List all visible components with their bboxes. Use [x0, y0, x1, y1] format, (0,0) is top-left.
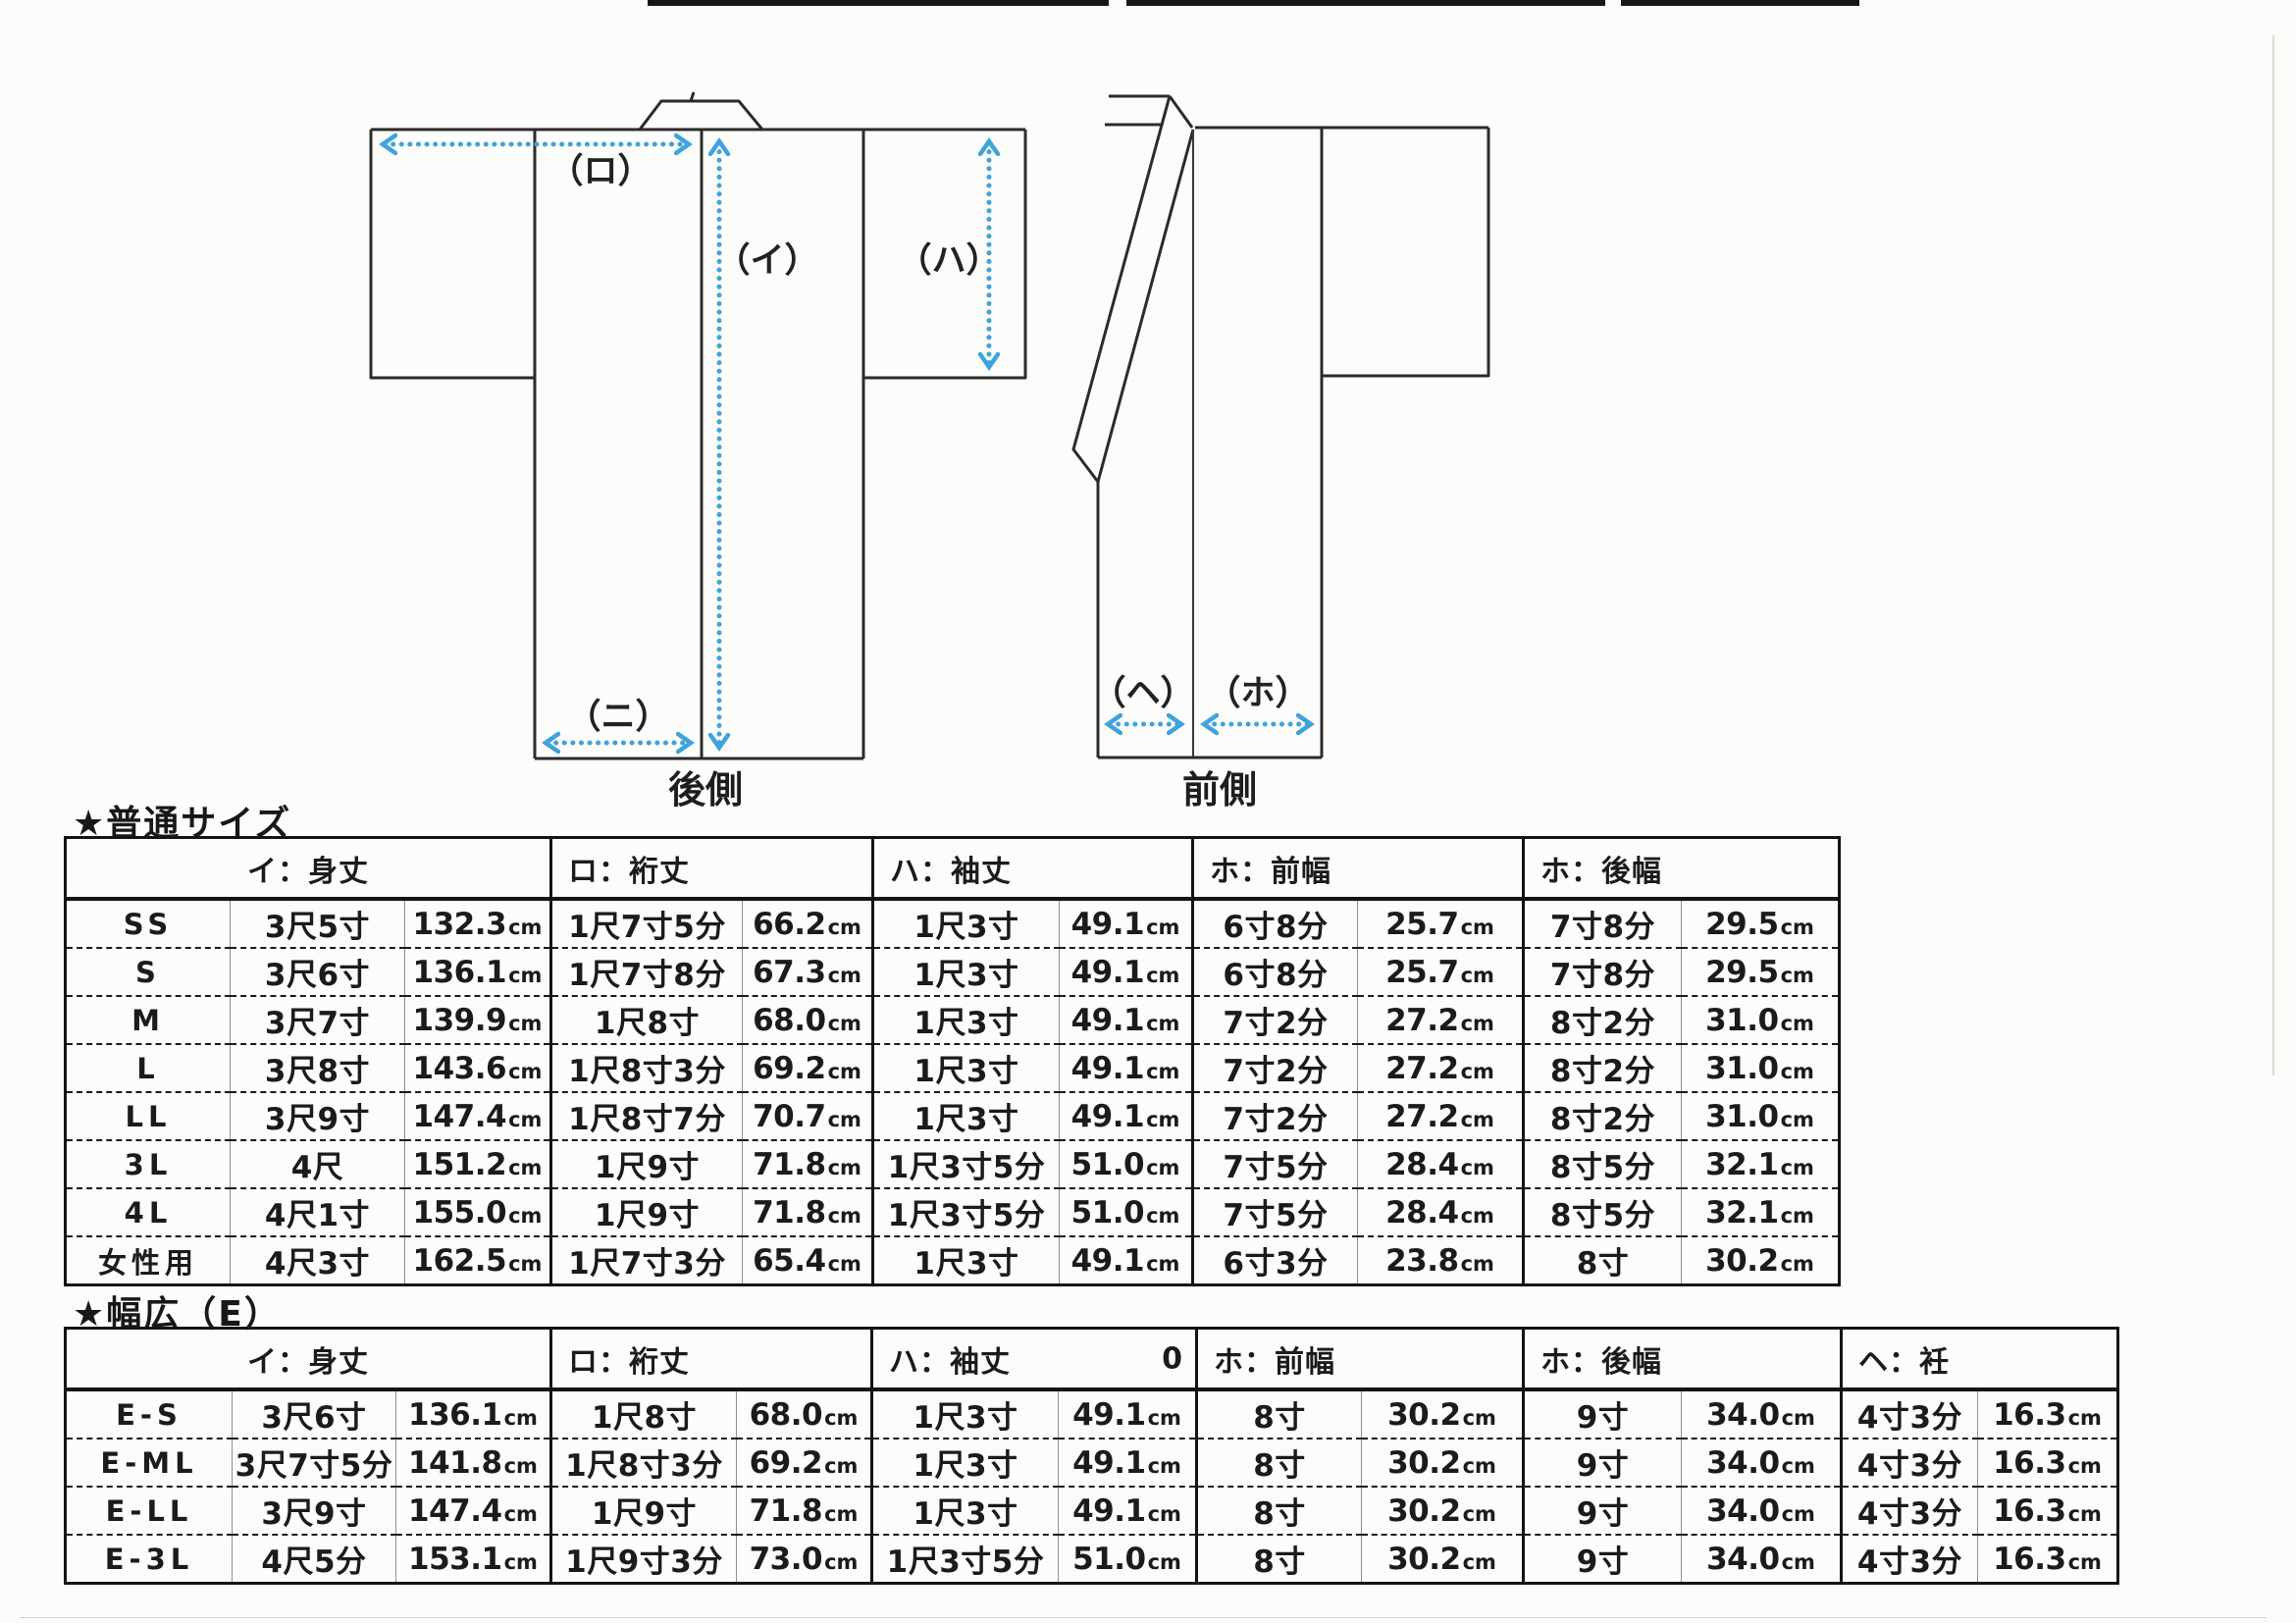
cell-maehaba: 6寸8分	[1193, 899, 1358, 948]
cell-yuki: 1尺9寸	[551, 1140, 743, 1188]
unit-label: cm	[1781, 1012, 1814, 1035]
wide-size-table: イ：身丈 ロ：裄丈 ハ：袖丈 0 ホ：前幅 ホ：後幅 ヘ：衽 E-S3尺6寸13…	[64, 1327, 2119, 1585]
cell-ushirohaba-cm: 34.0cm	[1682, 1535, 1842, 1584]
cell-sode-cm-value: 49.1	[1072, 1493, 1146, 1529]
cell-sode-cm: 49.1cm	[1060, 996, 1193, 1044]
cell-maehaba-cm-value: 27.2	[1385, 1051, 1459, 1086]
col-header-yuki: ロ：裄丈	[551, 838, 873, 900]
cell-sode: 1尺3寸	[873, 899, 1060, 948]
cell-yuki-cm: 71.8cm	[743, 1188, 873, 1236]
cell-size: E-LL	[66, 1487, 233, 1535]
unit-label: cm	[508, 1012, 542, 1035]
cell-mitake-cm: 153.1cm	[396, 1535, 551, 1584]
unit-label: cm	[508, 1060, 542, 1083]
table-row: S3尺6寸136.1cm1尺7寸8分67.3cm1尺3寸49.1cm6寸8分25…	[66, 948, 1840, 996]
cell-ushirohaba-cm: 34.0cm	[1682, 1439, 1842, 1487]
cell-mitake-cm: 136.1cm	[396, 1389, 551, 1439]
back-view-outline	[371, 92, 1025, 759]
cell-okumi: 4寸3分	[1842, 1535, 1978, 1584]
cell-maehaba-cm-value: 25.7	[1385, 907, 1459, 942]
cell-sode-cm: 49.1cm	[1060, 1236, 1193, 1285]
cell-maehaba-cm: 27.2cm	[1358, 1092, 1524, 1140]
col-header-maehaba: ホ：前幅	[1193, 838, 1524, 900]
cell-sode-cm-value: 51.0	[1072, 1542, 1146, 1577]
cell-maehaba-cm-value: 30.2	[1387, 1397, 1461, 1433]
cell-yuki-cm-value: 69.2	[750, 1445, 823, 1481]
cell-size: S	[66, 948, 231, 996]
cell-yuki: 1尺9寸	[551, 1487, 737, 1535]
cell-ushirohaba-cm: 31.0cm	[1682, 1092, 1840, 1140]
cell-size: E-3L	[66, 1535, 233, 1584]
front-collar-band	[1073, 96, 1193, 482]
cell-sode-cm-value: 49.1	[1071, 1243, 1145, 1279]
cell-sode-cm-value: 49.1	[1071, 1051, 1145, 1086]
cell-yuki: 1尺8寸3分	[551, 1044, 743, 1092]
col-header-sode: ハ：袖丈	[873, 838, 1193, 900]
cell-yuki-cm: 71.8cm	[737, 1487, 872, 1535]
cell-maehaba-cm: 28.4cm	[1358, 1140, 1524, 1188]
cell-sode-cm: 49.1cm	[1059, 1389, 1197, 1439]
cell-mitake-cm: 155.0cm	[405, 1188, 551, 1236]
unit-label: cm	[1148, 1502, 1181, 1526]
cell-okumi-cm: 16.3cm	[1978, 1535, 2118, 1584]
cell-maehaba-cm-value: 27.2	[1385, 1003, 1459, 1038]
cell-mitake-cm: 162.5cm	[405, 1236, 551, 1285]
unit-label: cm	[1461, 1108, 1494, 1131]
unit-label: cm	[1146, 1204, 1179, 1228]
unit-label: cm	[1781, 964, 1814, 987]
cell-sode-cm: 51.0cm	[1060, 1188, 1193, 1236]
cell-size: 女性用	[66, 1236, 231, 1285]
unit-label: cm	[508, 916, 542, 939]
cell-mitake-cm-value: 139.9	[413, 1003, 507, 1038]
cell-sode: 1尺3寸	[872, 1439, 1059, 1487]
cell-ushirohaba-cm: 34.0cm	[1682, 1487, 1842, 1535]
cell-maehaba-cm-value: 25.7	[1385, 955, 1459, 990]
cell-ushirohaba-cm-value: 30.2	[1705, 1243, 1779, 1279]
col-header-ushirohaba: ホ：後幅	[1524, 1329, 1842, 1390]
cell-maehaba-cm-value: 30.2	[1387, 1445, 1461, 1481]
cell-yuki-cm-value: 68.0	[753, 1003, 826, 1038]
cell-yuki-cm-value: 71.8	[753, 1147, 826, 1182]
cell-ushirohaba-cm: 29.5cm	[1682, 948, 1840, 996]
cell-mitake: 3尺7寸5分	[233, 1439, 396, 1487]
cell-mitake-cm: 147.4cm	[396, 1487, 551, 1535]
cell-ushirohaba: 9寸	[1524, 1389, 1682, 1439]
unit-label: cm	[1463, 1454, 1496, 1478]
col-header-mitake: イ：身丈	[66, 1329, 551, 1390]
cell-maehaba-cm-value: 30.2	[1387, 1542, 1461, 1577]
cell-yuki-cm-value: 69.2	[753, 1051, 826, 1086]
cell-yuki-cm: 69.2cm	[737, 1439, 872, 1487]
cell-yuki: 1尺7寸8分	[551, 948, 743, 996]
cell-mitake-cm: 139.9cm	[405, 996, 551, 1044]
cell-ushirohaba-cm-value: 34.0	[1706, 1445, 1780, 1481]
cell-mitake: 3尺9寸	[231, 1092, 405, 1140]
table-row: L3尺8寸143.6cm1尺8寸3分69.2cm1尺3寸49.1cm7寸2分27…	[66, 1044, 1840, 1092]
unit-label: cm	[1461, 964, 1494, 987]
cell-maehaba: 8寸	[1197, 1535, 1362, 1584]
cell-yuki: 1尺9寸	[551, 1188, 743, 1236]
cell-sode-cm-value: 49.1	[1071, 955, 1145, 990]
cell-maehaba-cm: 23.8cm	[1358, 1236, 1524, 1285]
cell-yuki-cm-value: 71.8	[750, 1493, 823, 1529]
cell-mitake-cm-value: 132.3	[413, 907, 507, 942]
cell-ushirohaba: 8寸5分	[1524, 1188, 1682, 1236]
table-row: 女性用4尺3寸162.5cm1尺7寸3分65.4cm1尺3寸49.1cm6寸3分…	[66, 1236, 1840, 1285]
cell-maehaba: 8寸	[1197, 1389, 1362, 1439]
cell-mitake: 4尺3寸	[231, 1236, 405, 1285]
cell-ushirohaba-cm-value: 29.5	[1705, 907, 1779, 942]
cell-maehaba: 7寸5分	[1193, 1140, 1358, 1188]
unit-label: cm	[1463, 1406, 1496, 1430]
unit-label: cm	[1463, 1550, 1496, 1574]
unit-label: cm	[1461, 1204, 1494, 1228]
unit-label: cm	[1461, 1012, 1494, 1035]
back-left-sleeve	[371, 130, 535, 378]
cell-yuki: 1尺7寸5分	[551, 899, 743, 948]
cell-maehaba-cm: 30.2cm	[1362, 1389, 1524, 1439]
cell-yuki-cm: 68.0cm	[737, 1389, 872, 1439]
cell-yuki: 1尺8寸3分	[551, 1439, 737, 1487]
cell-sode-cm: 49.1cm	[1059, 1487, 1197, 1535]
cell-ushirohaba-cm: 32.1cm	[1682, 1188, 1840, 1236]
cell-mitake: 3尺6寸	[231, 948, 405, 996]
col-header-sode: ハ：袖丈 0	[872, 1329, 1197, 1390]
normal-size-table-body: SS3尺5寸132.3cm1尺7寸5分66.2cm1尺3寸49.1cm6寸8分2…	[66, 899, 1840, 1285]
cell-mitake-cm: 147.4cm	[405, 1092, 551, 1140]
cell-yuki: 1尺9寸3分	[551, 1535, 737, 1584]
unit-label: cm	[1782, 1454, 1815, 1478]
cell-mitake: 3尺8寸	[231, 1044, 405, 1092]
cell-ushirohaba-cm: 31.0cm	[1682, 1044, 1840, 1092]
cell-mitake-cm-value: 141.8	[408, 1445, 502, 1481]
cell-mitake-cm: 151.2cm	[405, 1140, 551, 1188]
col-header-sode-stray-zero: 0	[1162, 1341, 1183, 1376]
unit-label: cm	[1781, 916, 1814, 939]
cell-maehaba-cm: 25.7cm	[1358, 948, 1524, 996]
unit-label: cm	[508, 964, 542, 987]
cell-yuki-cm: 69.2cm	[743, 1044, 873, 1092]
table-row: 4L4尺1寸155.0cm1尺9寸71.8cm1尺3寸5分51.0cm7寸5分2…	[66, 1188, 1840, 1236]
unit-label: cm	[1782, 1406, 1815, 1430]
unit-label: cm	[1461, 1252, 1494, 1276]
cell-ushirohaba-cm-value: 31.0	[1705, 1051, 1779, 1086]
cell-maehaba-cm: 28.4cm	[1358, 1188, 1524, 1236]
cell-sode-cm-value: 49.1	[1071, 1099, 1145, 1134]
cell-ushirohaba: 8寸2分	[1524, 996, 1682, 1044]
unit-label: cm	[1781, 1156, 1814, 1179]
cell-maehaba-cm-value: 23.8	[1385, 1243, 1459, 1279]
cell-ushirohaba: 8寸2分	[1524, 1044, 1682, 1092]
cell-size: M	[66, 996, 231, 1044]
table-row: E-S3尺6寸136.1cm1尺8寸68.0cm1尺3寸49.1cm8寸30.2…	[66, 1389, 2118, 1439]
front-view-outline	[1073, 96, 1488, 758]
unit-label: cm	[508, 1252, 542, 1276]
cell-ushirohaba-cm: 29.5cm	[1682, 899, 1840, 948]
cell-yuki: 1尺8寸	[551, 1389, 737, 1439]
cell-okumi-cm-value: 16.3	[1993, 1445, 2066, 1481]
unit-label: cm	[2068, 1550, 2102, 1574]
label-he: （ヘ）	[1091, 674, 1194, 713]
cell-yuki-cm: 66.2cm	[743, 899, 873, 948]
unit-label: cm	[1461, 1156, 1494, 1179]
back-collar	[640, 101, 762, 130]
cell-sode: 1尺3寸	[872, 1487, 1059, 1535]
unit-label: cm	[2068, 1502, 2102, 1526]
unit-label: cm	[1463, 1502, 1496, 1526]
cell-mitake: 3尺7寸	[231, 996, 405, 1044]
cell-mitake-cm-value: 147.4	[408, 1493, 502, 1529]
cell-maehaba: 8寸	[1197, 1487, 1362, 1535]
cell-mitake: 3尺6寸	[233, 1389, 396, 1439]
col-header-sode-label: ハ：袖丈	[889, 1345, 1011, 1380]
cell-ushirohaba: 9寸	[1524, 1439, 1682, 1487]
cell-maehaba-cm-value: 28.4	[1385, 1147, 1459, 1182]
cell-ushirohaba-cm-value: 31.0	[1705, 1003, 1779, 1038]
cell-size: 4L	[66, 1188, 231, 1236]
cell-mitake-cm-value: 151.2	[413, 1147, 507, 1182]
table-row: M3尺7寸139.9cm1尺8寸68.0cm1尺3寸49.1cm7寸2分27.2…	[66, 996, 1840, 1044]
cell-maehaba: 7寸2分	[1193, 996, 1358, 1044]
cell-maehaba-cm-value: 30.2	[1387, 1493, 1461, 1529]
unit-label: cm	[1781, 1204, 1814, 1228]
cell-yuki-cm-value: 71.8	[753, 1195, 826, 1230]
unit-label: cm	[1146, 1012, 1179, 1035]
unit-label: cm	[824, 1550, 858, 1574]
cell-size: SS	[66, 899, 231, 948]
cell-sode: 1尺3寸5分	[872, 1535, 1059, 1584]
cell-ushirohaba: 8寸5分	[1524, 1140, 1682, 1188]
cell-mitake-cm-value: 155.0	[413, 1195, 507, 1230]
cell-size: 3L	[66, 1140, 231, 1188]
table-row: E-ML3尺7寸5分141.8cm1尺8寸3分69.2cm1尺3寸49.1cm8…	[66, 1439, 2118, 1487]
cell-maehaba-cm: 27.2cm	[1358, 1044, 1524, 1092]
cell-sode-cm: 49.1cm	[1060, 948, 1193, 996]
unit-label: cm	[828, 964, 861, 987]
cell-yuki-cm-value: 70.7	[753, 1099, 826, 1134]
cell-yuki: 1尺8寸	[551, 996, 743, 1044]
cell-maehaba-cm-value: 27.2	[1385, 1099, 1459, 1134]
cell-sode: 1尺3寸	[873, 1044, 1060, 1092]
front-right-sleeve	[1322, 128, 1488, 376]
unit-label: cm	[828, 916, 861, 939]
cell-sode-cm: 49.1cm	[1059, 1439, 1197, 1487]
cell-maehaba-cm: 25.7cm	[1358, 899, 1524, 948]
label-ho: （ホ）	[1206, 674, 1309, 713]
cell-ushirohaba: 9寸	[1524, 1535, 1682, 1584]
cell-maehaba: 8寸	[1197, 1439, 1362, 1487]
cell-ushirohaba-cm-value: 32.1	[1705, 1195, 1779, 1230]
unit-label: cm	[1461, 1060, 1494, 1083]
cell-ushirohaba-cm: 34.0cm	[1682, 1389, 1842, 1439]
unit-label: cm	[1461, 916, 1494, 939]
cell-mitake-cm: 143.6cm	[405, 1044, 551, 1092]
cell-maehaba-cm-value: 28.4	[1385, 1195, 1459, 1230]
unit-label: cm	[1148, 1550, 1181, 1574]
cell-sode-cm-value: 49.1	[1071, 1003, 1145, 1038]
cell-maehaba: 6寸8分	[1193, 948, 1358, 996]
label-i: （イ）	[715, 241, 818, 281]
scanned-size-chart-page: （ロ） （イ） （ハ） （ニ） （ヘ） （ホ） 後側 前側 ★普通サイズ イ：身…	[0, 0, 2296, 1623]
cell-ushirohaba: 9寸	[1524, 1487, 1682, 1535]
cell-yuki-cm: 71.8cm	[743, 1140, 873, 1188]
unit-label: cm	[508, 1204, 542, 1228]
cell-yuki: 1尺7寸3分	[551, 1236, 743, 1285]
unit-label: cm	[1146, 964, 1179, 987]
unit-label: cm	[1781, 1060, 1814, 1083]
cell-mitake: 4尺1寸	[231, 1188, 405, 1236]
col-header-ushirohaba: ホ：後幅	[1524, 838, 1840, 900]
unit-label: cm	[824, 1454, 858, 1478]
unit-label: cm	[504, 1502, 538, 1526]
unit-label: cm	[1781, 1252, 1814, 1276]
cell-mitake-cm-value: 136.1	[408, 1397, 502, 1433]
unit-label: cm	[508, 1156, 542, 1179]
unit-label: cm	[2068, 1454, 2102, 1478]
back-view-caption: 後側	[668, 768, 743, 811]
cell-ushirohaba: 7寸8分	[1524, 899, 1682, 948]
cell-mitake-cm: 132.3cm	[405, 899, 551, 948]
unit-label: cm	[1146, 1060, 1179, 1083]
cell-maehaba: 7寸2分	[1193, 1092, 1358, 1140]
cell-sode-cm: 49.1cm	[1060, 1044, 1193, 1092]
cell-ushirohaba-cm: 32.1cm	[1682, 1140, 1840, 1188]
cell-yuki-cm: 68.0cm	[743, 996, 873, 1044]
cell-mitake-cm-value: 143.6	[413, 1051, 507, 1086]
cell-size: E-S	[66, 1389, 233, 1439]
cell-sode: 1尺3寸	[873, 1092, 1060, 1140]
header-row: イ：身丈 ロ：裄丈 ハ：袖丈 ホ：前幅 ホ：後幅	[66, 838, 1840, 900]
cell-okumi-cm-value: 16.3	[1993, 1397, 2066, 1433]
cell-okumi-cm: 16.3cm	[1978, 1389, 2118, 1439]
cell-sode-cm: 49.1cm	[1060, 899, 1193, 948]
front-collar-shoulder-slant	[1170, 96, 1192, 128]
cell-sode-cm-value: 51.0	[1071, 1147, 1145, 1182]
table-row: 3L4尺151.2cm1尺9寸71.8cm1尺3寸5分51.0cm7寸5分28.…	[66, 1140, 1840, 1188]
cell-yuki-cm-value: 67.3	[753, 955, 826, 990]
cell-mitake-cm-value: 162.5	[413, 1243, 507, 1279]
label-ro: （ロ）	[548, 152, 652, 191]
header-row: イ：身丈 ロ：裄丈 ハ：袖丈 0 ホ：前幅 ホ：後幅 ヘ：衽	[66, 1329, 2118, 1390]
unit-label: cm	[2068, 1406, 2102, 1430]
cell-size: L	[66, 1044, 231, 1092]
cell-size: LL	[66, 1092, 231, 1140]
cell-mitake: 4尺5分	[233, 1535, 396, 1584]
unit-label: cm	[508, 1108, 542, 1131]
cell-ushirohaba-cm: 30.2cm	[1682, 1236, 1840, 1285]
cell-yuki-cm-value: 66.2	[753, 907, 826, 942]
cell-sode: 1尺3寸	[873, 996, 1060, 1044]
cell-sode: 1尺3寸	[873, 1236, 1060, 1285]
cell-yuki-cm: 73.0cm	[737, 1535, 872, 1584]
cell-yuki-cm: 70.7cm	[743, 1092, 873, 1140]
cell-okumi-cm-value: 16.3	[1993, 1493, 2066, 1529]
cell-sode: 1尺3寸	[873, 948, 1060, 996]
cell-maehaba: 7寸5分	[1193, 1188, 1358, 1236]
cell-ushirohaba-cm-value: 34.0	[1706, 1542, 1780, 1577]
cell-okumi: 4寸3分	[1842, 1439, 1978, 1487]
col-header-mitake: イ：身丈	[66, 838, 551, 900]
scan-artifact-bottom-line	[20, 1617, 2267, 1618]
cell-sode-cm-value: 51.0	[1071, 1195, 1145, 1230]
cell-okumi-cm: 16.3cm	[1978, 1487, 2118, 1535]
table-row: SS3尺5寸132.3cm1尺7寸5分66.2cm1尺3寸49.1cm6寸8分2…	[66, 899, 1840, 948]
unit-label: cm	[824, 1406, 858, 1430]
cell-sode-cm-value: 49.1	[1072, 1445, 1146, 1481]
unit-label: cm	[1781, 1108, 1814, 1131]
cell-ushirohaba: 8寸2分	[1524, 1092, 1682, 1140]
normal-size-table: イ：身丈 ロ：裄丈 ハ：袖丈 ホ：前幅 ホ：後幅 SS3尺5寸132.3cm1尺…	[64, 836, 1841, 1286]
col-header-yuki: ロ：裄丈	[551, 1329, 872, 1390]
cell-maehaba-cm: 30.2cm	[1362, 1487, 1524, 1535]
cell-sode-cm: 51.0cm	[1060, 1140, 1193, 1188]
cell-ushirohaba-cm-value: 32.1	[1705, 1147, 1779, 1182]
col-header-maehaba: ホ：前幅	[1197, 1329, 1524, 1390]
unit-label: cm	[1782, 1550, 1815, 1574]
cell-yuki-cm: 65.4cm	[743, 1236, 873, 1285]
front-view-caption: 前側	[1182, 768, 1257, 811]
table-row: E-LL3尺9寸147.4cm1尺9寸71.8cm1尺3寸49.1cm8寸30.…	[66, 1487, 2118, 1535]
cell-sode-cm: 51.0cm	[1059, 1535, 1197, 1584]
cell-maehaba-cm: 30.2cm	[1362, 1535, 1524, 1584]
cell-yuki-cm-value: 68.0	[750, 1397, 823, 1433]
col-header-okumi: ヘ：衽	[1842, 1329, 2118, 1390]
cell-yuki-cm-value: 73.0	[750, 1542, 823, 1577]
unit-label: cm	[828, 1108, 861, 1131]
cell-yuki: 1尺8寸7分	[551, 1092, 743, 1140]
label-ha: （ハ）	[897, 241, 1000, 281]
cell-yuki-cm-value: 65.4	[753, 1243, 826, 1279]
cell-sode: 1尺3寸	[872, 1389, 1059, 1439]
wide-size-table-body: E-S3尺6寸136.1cm1尺8寸68.0cm1尺3寸49.1cm8寸30.2…	[66, 1389, 2118, 1584]
cell-okumi: 4寸3分	[1842, 1389, 1978, 1439]
cell-mitake-cm-value: 153.1	[408, 1542, 502, 1577]
cell-maehaba-cm: 27.2cm	[1358, 996, 1524, 1044]
cell-ushirohaba: 7寸8分	[1524, 948, 1682, 996]
unit-label: cm	[1146, 916, 1179, 939]
cell-mitake-cm-value: 136.1	[413, 955, 507, 990]
unit-label: cm	[1146, 1156, 1179, 1179]
cell-ushirohaba-cm-value: 34.0	[1706, 1493, 1780, 1529]
unit-label: cm	[1146, 1252, 1179, 1276]
cell-mitake-cm-value: 147.4	[413, 1099, 507, 1134]
cell-ushirohaba-cm-value: 34.0	[1706, 1397, 1780, 1433]
unit-label: cm	[504, 1454, 538, 1478]
unit-label: cm	[1148, 1454, 1181, 1478]
unit-label: cm	[828, 1060, 861, 1083]
table-row: LL3尺9寸147.4cm1尺8寸7分70.7cm1尺3寸49.1cm7寸2分2…	[66, 1092, 1840, 1140]
cell-ushirohaba-cm-value: 31.0	[1705, 1099, 1779, 1134]
unit-label: cm	[504, 1406, 538, 1430]
cell-mitake-cm: 136.1cm	[405, 948, 551, 996]
unit-label: cm	[828, 1252, 861, 1276]
unit-label: cm	[824, 1502, 858, 1526]
unit-label: cm	[504, 1550, 538, 1574]
measure-arrows	[385, 143, 1309, 746]
cell-yuki-cm: 67.3cm	[743, 948, 873, 996]
cell-maehaba-cm: 30.2cm	[1362, 1439, 1524, 1487]
cell-mitake-cm: 141.8cm	[396, 1439, 551, 1487]
kimono-measurement-diagram: （ロ） （イ） （ハ） （ニ） （ヘ） （ホ） 後側 前側	[0, 0, 2296, 824]
unit-label: cm	[1146, 1108, 1179, 1131]
unit-label: cm	[828, 1204, 861, 1228]
cell-mitake: 3尺9寸	[233, 1487, 396, 1535]
table-row: E-3L4尺5分153.1cm1尺9寸3分73.0cm1尺3寸5分51.0cm8…	[66, 1535, 2118, 1584]
cell-mitake: 4尺	[231, 1140, 405, 1188]
cell-okumi-cm: 16.3cm	[1978, 1439, 2118, 1487]
cell-sode-cm-value: 49.1	[1072, 1397, 1146, 1433]
